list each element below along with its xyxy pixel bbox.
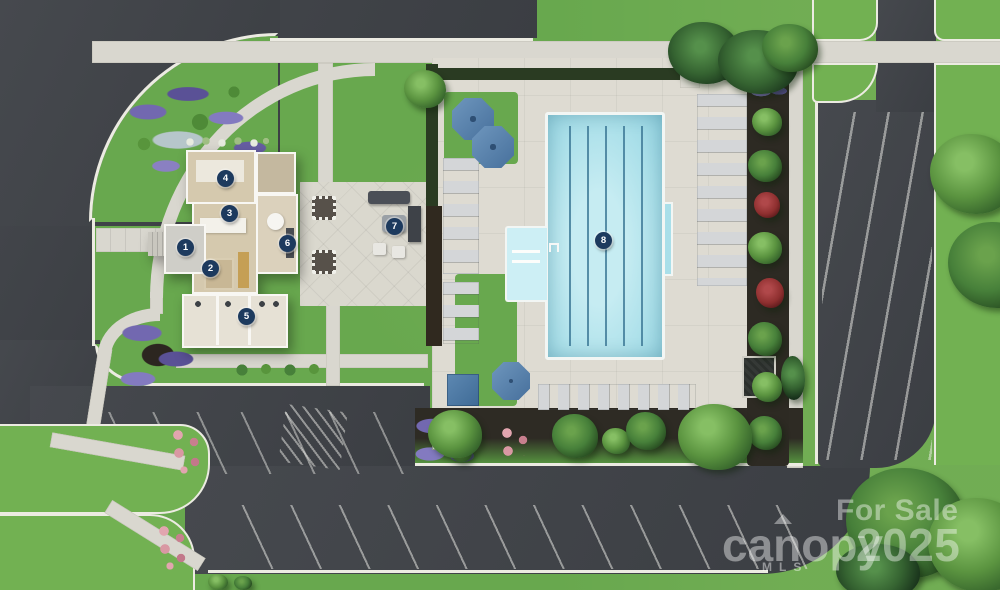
pool-entry-handrail — [512, 250, 540, 253]
lounge-chair-1 — [373, 243, 386, 255]
shrub-east-6 — [748, 416, 782, 450]
lounge-chairs-west-lower — [443, 282, 479, 344]
site-plan-rendering: 1 2 3 4 5 6 7 8 For Sale canopy 2025 MLS — [0, 0, 1000, 590]
shrub-east-1 — [752, 108, 782, 136]
pool-shallow-entry — [505, 226, 547, 302]
landscape-bed-east — [747, 80, 789, 466]
shrub-east-red-2 — [756, 278, 784, 308]
curb-left-road — [92, 218, 95, 346]
parking-stripes-right-lot — [822, 112, 932, 460]
room-east-lounge — [256, 194, 298, 274]
poi-marker-7[interactable]: 7 — [386, 218, 403, 235]
driveway-island-left-lower — [812, 63, 878, 103]
curb-parking-left — [815, 96, 818, 464]
lounge-chairs-south — [538, 384, 696, 410]
dining-table-2 — [312, 250, 336, 274]
restroom-fixtures — [184, 296, 285, 345]
canopy-roof-icon — [774, 514, 792, 524]
lounge-chairs-west-upper — [443, 158, 479, 274]
shrub-east-5 — [752, 372, 782, 402]
poi-marker-1[interactable]: 1 — [177, 239, 194, 256]
poi-marker-8[interactable]: 8 — [595, 232, 612, 249]
room-restrooms — [182, 294, 288, 348]
poi-marker-4[interactable]: 4 — [217, 170, 234, 187]
poi-marker-2[interactable]: 2 — [202, 260, 219, 277]
tree-south-bed-2 — [552, 414, 598, 458]
shrub-east-2 — [748, 150, 782, 182]
poi-marker-6[interactable]: 6 — [279, 235, 296, 252]
dining-table-1 — [312, 196, 336, 220]
flower-bed-island-a — [168, 426, 208, 476]
shrub-east-3 — [748, 232, 782, 264]
poi-marker-5[interactable]: 5 — [238, 308, 255, 325]
watermark-mls: MLS — [762, 560, 808, 574]
shrub-east-red-1 — [754, 192, 780, 218]
tree-south-bed-big — [678, 404, 752, 470]
watermark-year: 2025 — [856, 518, 960, 572]
entry-steps — [148, 232, 164, 256]
shade-canopy-square — [447, 374, 479, 406]
hedge-north-deck-west — [428, 64, 680, 84]
flower-south-bed — [497, 424, 533, 456]
pool-ladder — [549, 243, 559, 252]
curb-bottom-road — [208, 570, 768, 573]
sidewalk-east-of-deck — [787, 58, 803, 468]
shrub-bottom-strip-1 — [208, 574, 228, 590]
driveway-island-left-upper — [812, 0, 878, 41]
tree-south-bed-1 — [428, 410, 482, 458]
shrub-row-south-walk — [230, 360, 330, 380]
lounge-chair-2 — [392, 246, 405, 258]
umbrella-south-west — [492, 362, 530, 400]
grill-console — [408, 206, 421, 242]
poi-marker-3[interactable]: 3 — [221, 205, 238, 222]
flower-bed-island-b — [154, 522, 198, 576]
shrub-bottom-strip-2 — [234, 576, 252, 590]
room-upper-right-porch — [256, 152, 296, 194]
kitchen-island — [200, 218, 246, 233]
shrub-parking-edge — [781, 356, 805, 400]
outdoor-sofa — [368, 191, 410, 204]
round-table — [267, 213, 284, 230]
shrub-east-4 — [748, 322, 782, 356]
tree-top-cluster-3 — [762, 24, 818, 72]
kitchen-counter — [238, 252, 249, 288]
tree-deck-northwest — [404, 70, 446, 108]
tree-south-bed-3 — [626, 412, 666, 450]
grass-east-upper — [934, 0, 1000, 41]
lounge-chairs-east — [697, 94, 747, 286]
hatched-no-parking-zone — [278, 404, 347, 470]
